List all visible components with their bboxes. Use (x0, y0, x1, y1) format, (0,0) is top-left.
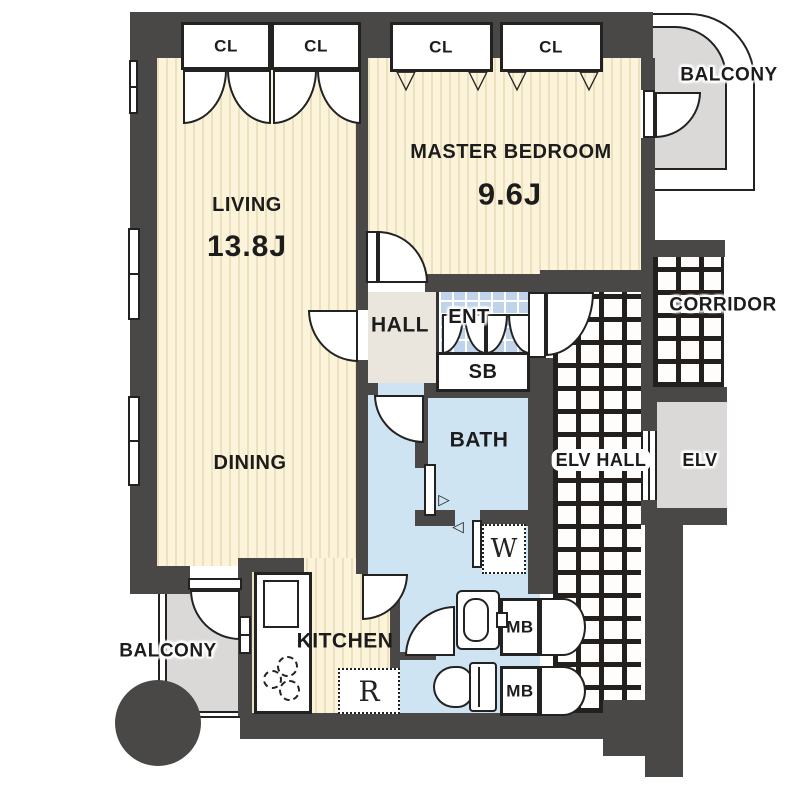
wall-ent-right-b (528, 358, 553, 594)
living-label: LIVING (212, 195, 282, 215)
meter-box-1-label: MB (506, 619, 533, 636)
window-kitchen (239, 616, 251, 654)
stove (261, 652, 303, 706)
toilet (433, 662, 499, 712)
folding-door-icon: ▽ (468, 67, 488, 93)
wall-bedroom-right-b (641, 138, 655, 242)
closet-3-label: CL (429, 39, 453, 56)
wall-elvhall-corridor (641, 257, 653, 387)
dining-label: DINING (214, 453, 287, 473)
hall-label: HALL (371, 315, 429, 336)
washbasin (456, 590, 500, 650)
kitchen-label: KITCHEN (297, 631, 394, 652)
living-size-label: 13.8J (207, 232, 287, 262)
window-left-small (129, 60, 138, 114)
entrance-label: ENT (448, 307, 490, 327)
bath-sliding-door (424, 464, 436, 516)
corridor-label: CORRIDOR (669, 296, 776, 315)
wall-corridor-top (641, 240, 725, 257)
wall-corridor-bottom (641, 387, 727, 402)
washer-symbol: W (491, 534, 518, 564)
mb-2-door-arc (540, 666, 586, 716)
wall-bedroom-right-a (641, 58, 655, 90)
washer-sliding-door (472, 520, 482, 568)
corridor-floor (653, 257, 721, 387)
folding-door-icon: ▽ (579, 67, 599, 93)
pillar (115, 680, 201, 766)
window-living-1 (128, 228, 140, 320)
wall-elvhall-top (540, 270, 641, 292)
folding-door-icon: ▽ (396, 67, 416, 93)
folding-door-icon: ▽ (507, 67, 527, 93)
closet-2-label: CL (304, 38, 328, 55)
balcony-bottom-door-leaf (188, 578, 242, 590)
refrigerator-symbol: R (358, 675, 379, 708)
elevator-hall-label: ELV HALL (552, 449, 651, 471)
hall-floor (368, 292, 436, 383)
slide-arrow-right-icon: ▷ (438, 493, 450, 508)
elevator-label: ELV (682, 451, 717, 469)
balcony-top-label: BALCONY (680, 66, 777, 85)
washing-machine: W (482, 524, 526, 574)
mb-1-door-arc (540, 598, 586, 656)
balcony-bottom-label: BALCONY (119, 642, 216, 661)
bath-label: BATH (450, 430, 509, 451)
closet-4-label: CL (539, 39, 563, 56)
wall-kitchen-top-stub (238, 558, 304, 572)
meter-box-2-label: MB (506, 683, 533, 700)
kitchen-sink (263, 580, 299, 628)
balcony-top-door-leaf (643, 90, 655, 138)
refrigerator: R (338, 668, 400, 714)
master-bedroom-size-label: 9.6J (478, 179, 542, 210)
window-living-2 (128, 396, 140, 486)
floor-plan: CL CL CL CL ▽ ▽ ▽ ▽ SB ▷ ◁ MB MB (0, 0, 800, 792)
wall-bottom (240, 713, 645, 739)
wall-right-lower (645, 525, 683, 777)
slide-arrow-left-icon: ◁ (452, 520, 464, 535)
burner-icon (279, 680, 300, 701)
wall-elvdoor-top (641, 402, 657, 433)
wall-living-bottom (130, 566, 190, 594)
bedroom-door-leaf (366, 231, 378, 283)
wall-elv-bottom (641, 508, 727, 525)
corridor-edge-line (721, 257, 724, 387)
washbasin-bowl (463, 598, 489, 642)
closet-1-label: CL (214, 38, 238, 55)
shoe-box-label: SB (469, 362, 498, 382)
front-door-leaf (528, 292, 546, 358)
washbasin-tap (496, 612, 508, 628)
wall-hall-wash-stub (356, 383, 378, 395)
toilet-tank (469, 662, 497, 712)
master-bedroom-label: MASTER BEDROOM (410, 142, 611, 162)
